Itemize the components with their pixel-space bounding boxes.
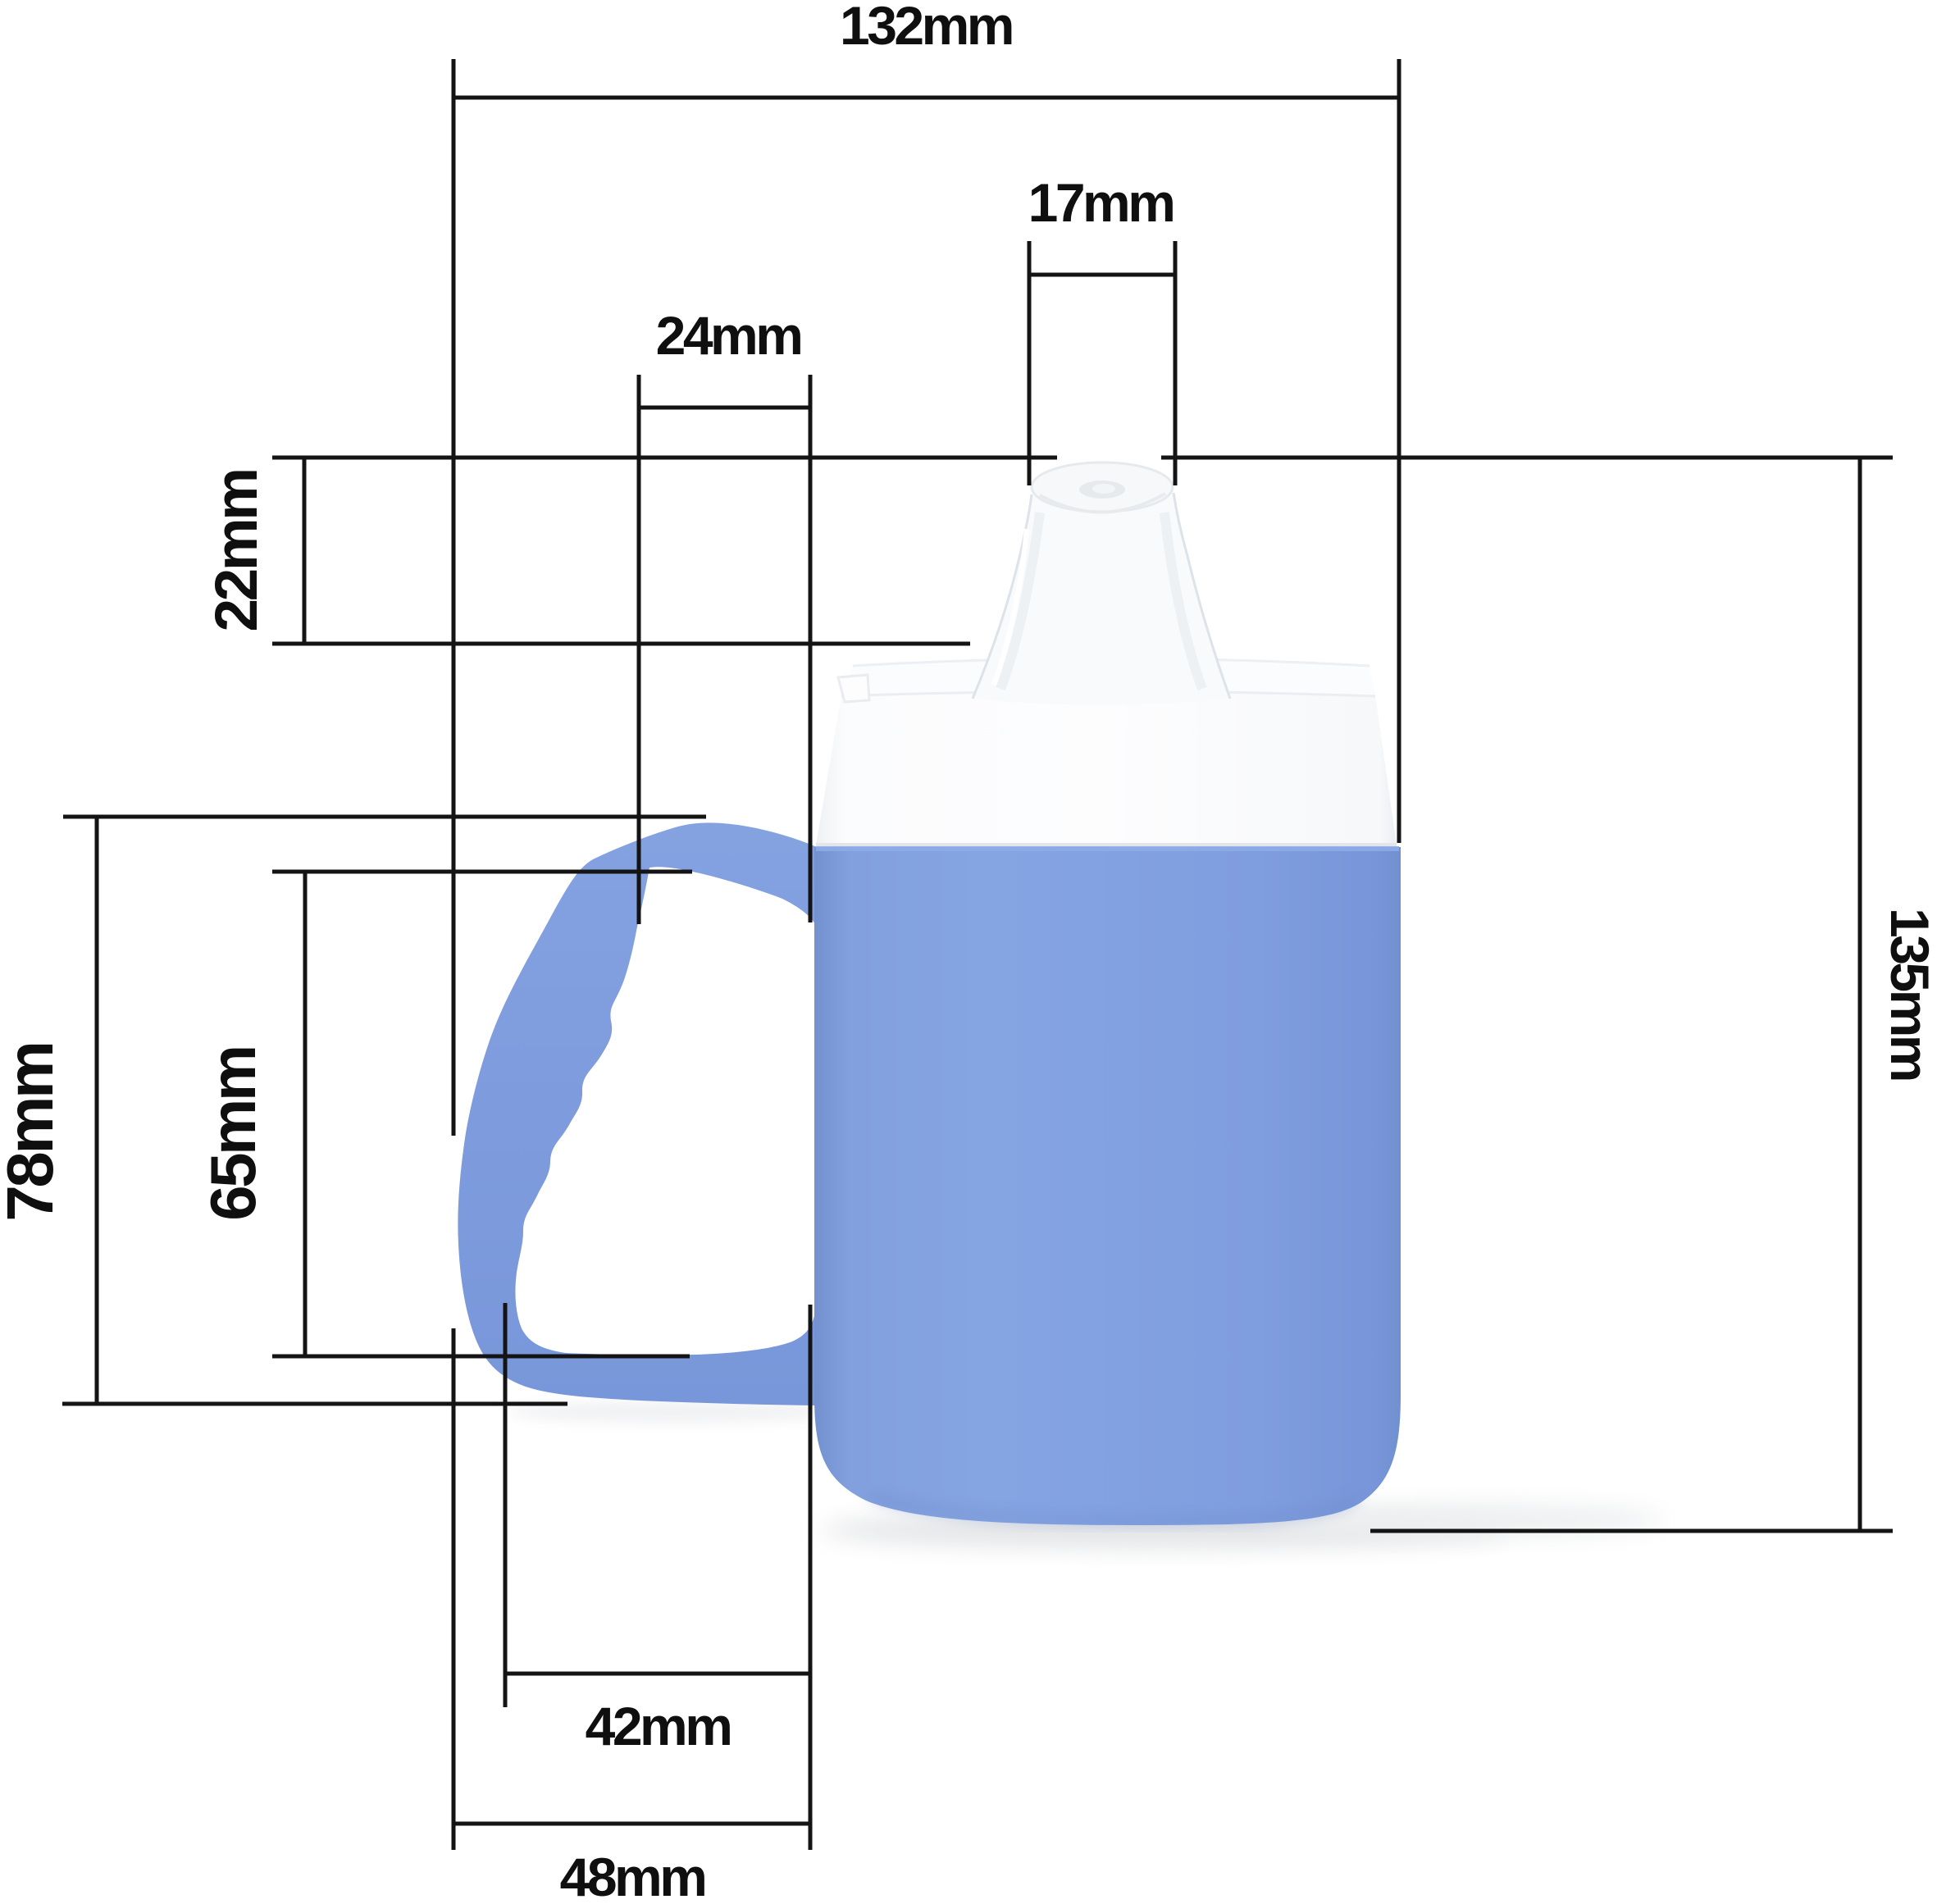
svg-text:132mm: 132mm xyxy=(840,0,1012,56)
svg-text:48mm: 48mm xyxy=(560,1847,705,1904)
svg-text:22mm: 22mm xyxy=(203,470,270,631)
svg-text:65mm: 65mm xyxy=(197,1047,269,1220)
svg-text:42mm: 42mm xyxy=(586,1696,731,1756)
svg-text:24mm: 24mm xyxy=(656,305,801,366)
svg-text:78mm: 78mm xyxy=(0,1043,66,1221)
svg-text:17mm: 17mm xyxy=(1028,172,1174,233)
svg-text:135mm: 135mm xyxy=(1880,908,1937,1080)
